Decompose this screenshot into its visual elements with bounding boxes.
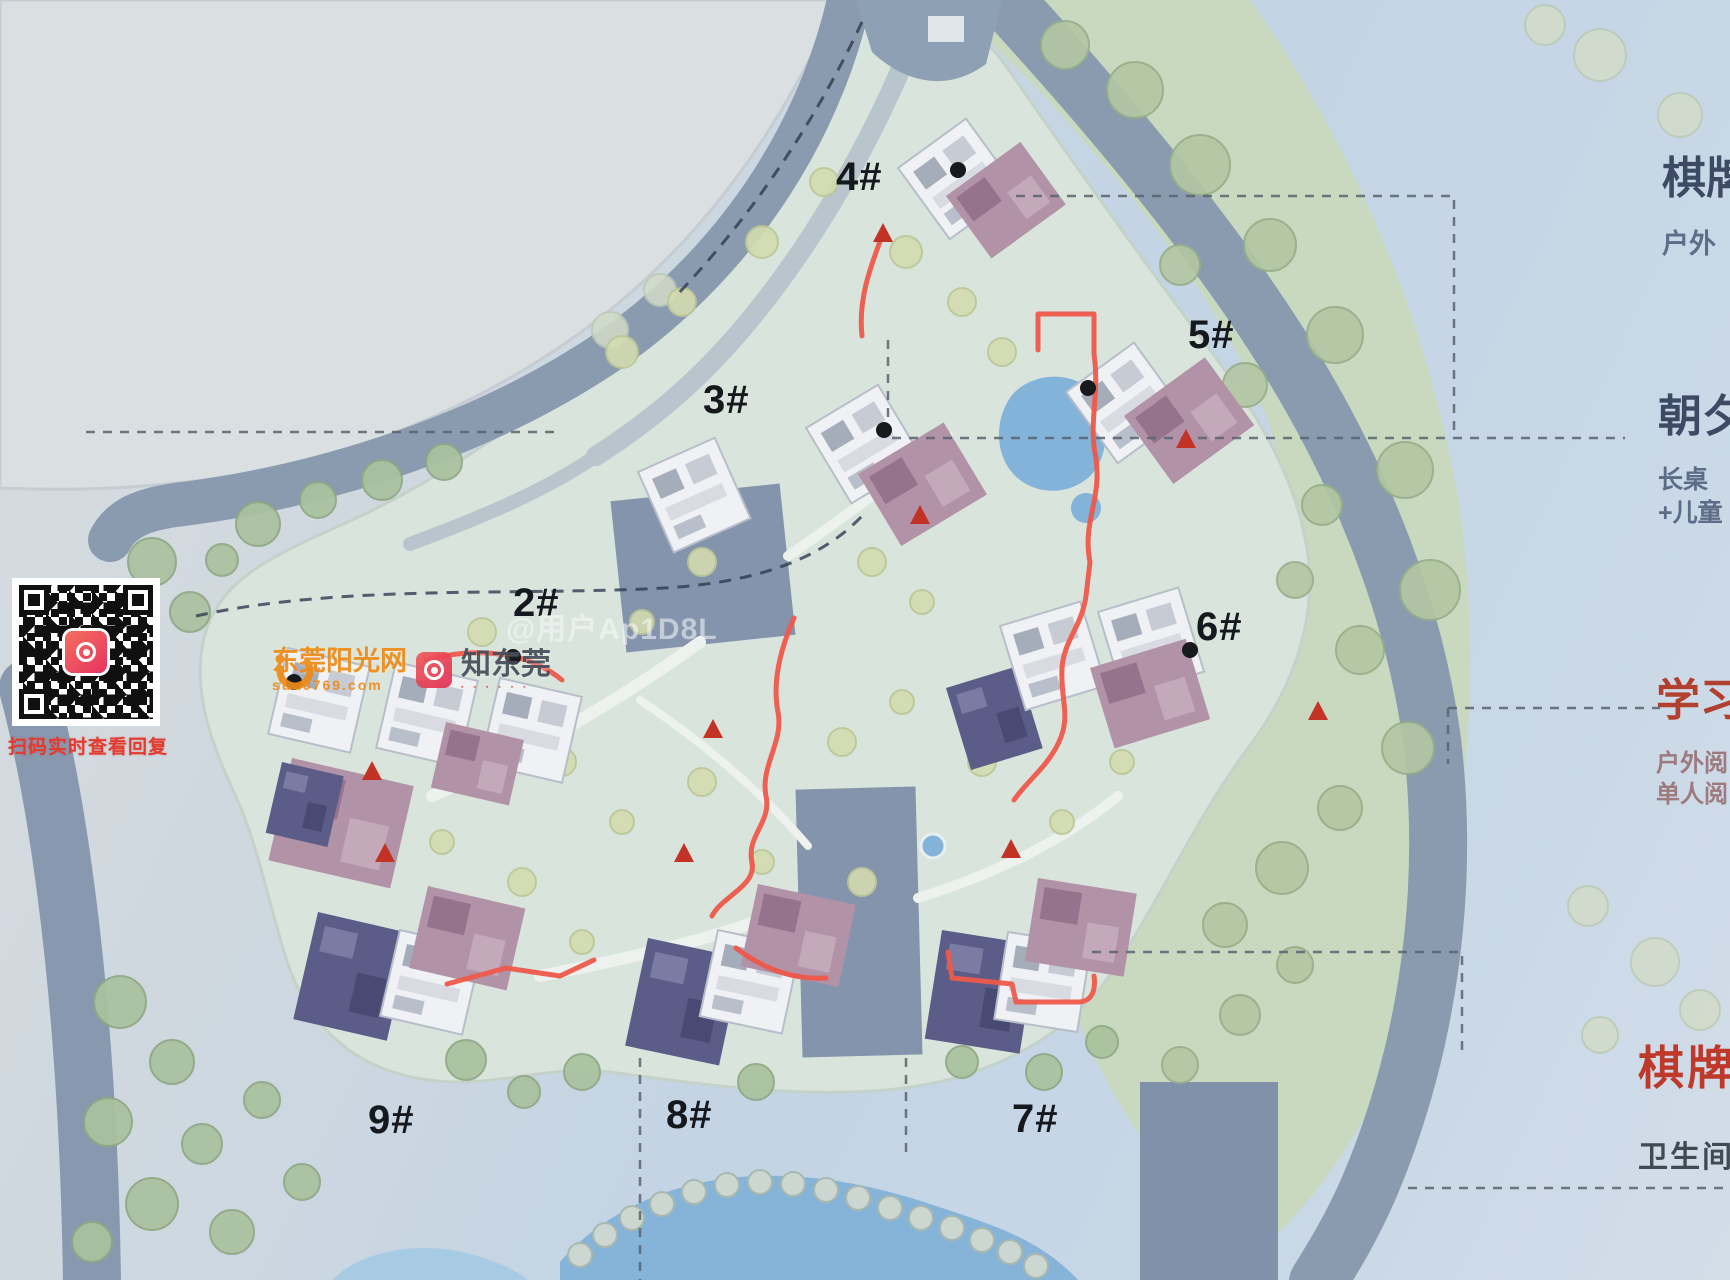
- eye-icon: [424, 660, 444, 680]
- building-label-3: 3#: [703, 378, 750, 422]
- annotation-chess-top: 棋牌 户外: [1662, 142, 1730, 261]
- annotation-study: 学习 户外阅 单人阅: [1656, 664, 1730, 810]
- watermark-badge-dots: ▪ ▪ ▪ ▪ ▪ ▪: [461, 684, 551, 691]
- qr-pattern: [19, 585, 153, 719]
- eye-icon: [76, 642, 96, 662]
- annotation-subtitle: 单人阅: [1656, 779, 1730, 810]
- annotation-title: 朝夕: [1658, 380, 1730, 444]
- qr-finder-icon: [19, 585, 49, 615]
- building-label-7: 7#: [1012, 1097, 1059, 1141]
- annotation-subtitle: 长桌: [1658, 464, 1730, 497]
- building-label-8: 8#: [666, 1093, 713, 1137]
- watermark-dgsun: 东莞阳光网 sun0769.com 知东莞 ▪ ▪ ▪ ▪ ▪ ▪: [272, 648, 551, 692]
- annotation-title: 棋牌: [1638, 1032, 1730, 1098]
- watermark-badge-name: 知东莞: [461, 650, 551, 680]
- annotation-subtitle: 卫生间+: [1638, 1132, 1730, 1176]
- qr-code: [12, 578, 160, 726]
- annotation-subtitle: 户外阅: [1656, 748, 1730, 779]
- annotation-title: 学习: [1656, 664, 1730, 728]
- annotation-title: 棋牌: [1662, 142, 1730, 206]
- annotation-chess-bottom: 棋牌 卫生间+: [1638, 1032, 1730, 1176]
- site-plan-photo: 4# 5# 3# 2# 6# 9# 8# 7# 棋牌 户外 朝夕 长桌 +儿童 …: [0, 0, 1730, 1280]
- zhidongguan-logo-icon: [416, 652, 452, 688]
- building-label-4: 4#: [836, 155, 883, 199]
- qr-finder-icon: [19, 689, 49, 719]
- annotation-subtitle: 户外: [1662, 222, 1730, 261]
- watermark-user: @用户Ap1D8L: [506, 604, 718, 648]
- building-label-9: 9#: [368, 1098, 415, 1142]
- qr-finder-icon: [123, 585, 153, 615]
- building-label-6: 6#: [1196, 605, 1243, 649]
- annotation-subtitle: +儿童: [1658, 497, 1730, 530]
- qr-center-logo-icon: [65, 631, 107, 673]
- master-plan-map: 4# 5# 3# 2# 6# 9# 8# 7#: [0, 0, 1730, 1280]
- qr-caption: 扫码实时查看回复: [8, 732, 168, 759]
- annotation-zhaoxi: 朝夕 长桌 +儿童: [1658, 380, 1730, 530]
- sun-logo-icon: [272, 648, 316, 692]
- building-label-5: 5#: [1188, 313, 1235, 357]
